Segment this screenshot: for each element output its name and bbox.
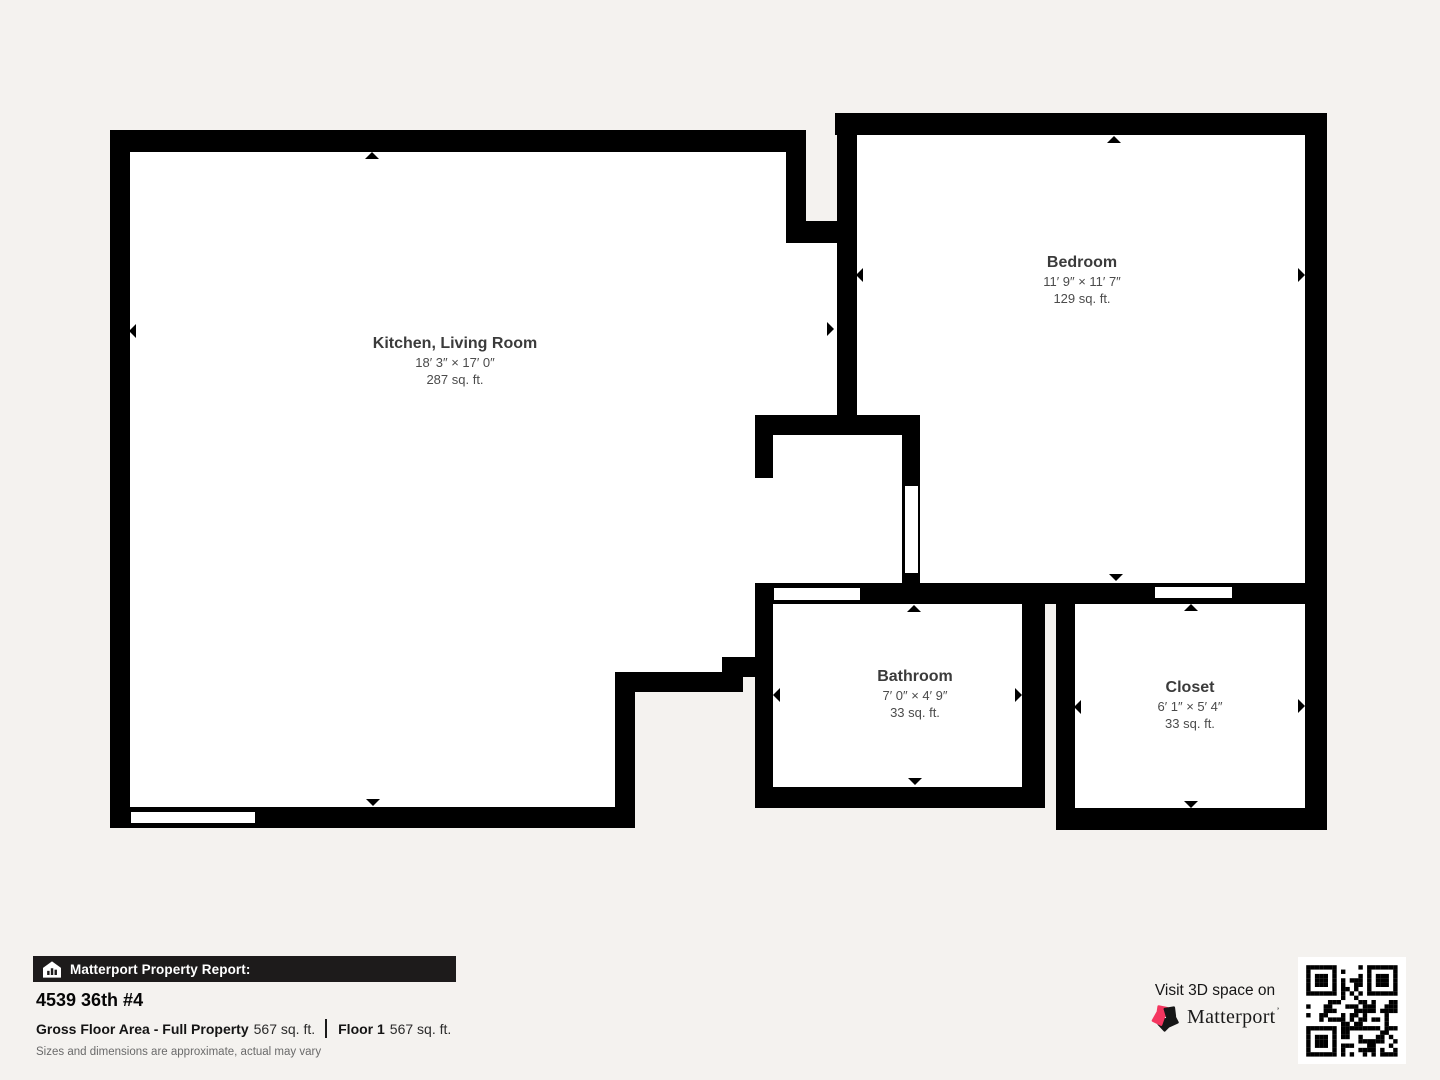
wall: [755, 583, 773, 808]
floor1-value: 567 sq. ft.: [390, 1021, 451, 1037]
gross-area-value: 567 sq. ft.: [254, 1021, 315, 1037]
wall: [615, 672, 635, 828]
wall: [1022, 583, 1045, 808]
measure-arrow-up: [365, 152, 379, 159]
matterport-pinwheel-icon: [1151, 1003, 1180, 1032]
matterport-logo: Matterport’: [1151, 1003, 1280, 1032]
wall: [1305, 602, 1327, 830]
measure-arrow-down: [366, 799, 380, 806]
qr-code: [1298, 957, 1406, 1064]
measure-arrow-down: [1109, 574, 1123, 581]
room-interior: [857, 135, 1305, 583]
disclaimer-text: Sizes and dimensions are approximate, ac…: [36, 1046, 321, 1058]
measure-arrow-right: [1298, 699, 1305, 713]
wall: [1056, 808, 1327, 830]
floor1-label: Floor 1: [338, 1021, 385, 1037]
house-chart-icon: [43, 961, 61, 978]
measure-arrow-left: [1074, 700, 1081, 714]
room-name: Closet: [1157, 679, 1222, 697]
room-label-kitchen-living-room: Kitchen, Living Room18′ 3″ × 17′ 0″287 s…: [373, 335, 537, 388]
wall: [110, 130, 130, 828]
room-interior: [786, 243, 837, 435]
measure-arrow-right: [1015, 688, 1022, 702]
measure-arrow-left: [773, 688, 780, 702]
measure-arrow-up: [1107, 136, 1121, 143]
measure-arrow-up: [1184, 604, 1198, 611]
measure-arrow-down: [908, 778, 922, 785]
wall: [1056, 602, 1075, 830]
room-dimensions: 18′ 3″ × 17′ 0″: [373, 354, 537, 371]
room-area: 287 sq. ft.: [373, 371, 537, 388]
room-name: Kitchen, Living Room: [373, 335, 537, 353]
property-address: 4539 36th #4: [36, 990, 143, 1011]
visit-3d-space-text: Visit 3D space on: [1155, 982, 1275, 1000]
wall: [806, 221, 837, 243]
measure-arrow-right: [827, 322, 834, 336]
door-opening: [1155, 587, 1232, 598]
room-name: Bedroom: [1043, 254, 1121, 272]
room-area: 129 sq. ft.: [1043, 290, 1121, 307]
banner-label: Matterport Property Report:: [70, 962, 250, 977]
room-name: Bathroom: [877, 668, 953, 686]
measure-arrow-right: [1298, 268, 1305, 282]
room-area: 33 sq. ft.: [877, 704, 953, 721]
wall: [835, 113, 1327, 135]
room-dimensions: 6′ 1″ × 5′ 4″: [1157, 698, 1222, 715]
room-area: 33 sq. ft.: [1157, 715, 1222, 732]
separator: [325, 1019, 327, 1038]
room-dimensions: 11′ 9″ × 11′ 7″: [1043, 273, 1121, 290]
room-label-bathroom: Bathroom7′ 0″ × 4′ 9″33 sq. ft.: [877, 668, 953, 721]
floor-plan: Kitchen, Living Room18′ 3″ × 17′ 0″287 s…: [0, 0, 1440, 1080]
wall: [837, 113, 857, 417]
property-report-banner: Matterport Property Report:: [33, 956, 456, 982]
wall: [110, 130, 806, 152]
window-opening: [131, 812, 255, 823]
room-label-bedroom: Bedroom11′ 9″ × 11′ 7″129 sq. ft.: [1043, 254, 1121, 307]
room-label-closet: Closet6′ 1″ × 5′ 4″33 sq. ft.: [1157, 679, 1222, 732]
measure-arrow-down: [1184, 801, 1198, 808]
door-opening: [774, 588, 860, 600]
wall: [755, 415, 920, 435]
gross-area-label: Gross Floor Area - Full Property: [36, 1021, 249, 1037]
gross-floor-area-line: Gross Floor Area - Full Property 567 sq.…: [36, 1019, 451, 1038]
wall: [755, 415, 773, 478]
matterport-wordmark: Matterport’: [1187, 1006, 1280, 1029]
measure-arrow-left: [856, 268, 863, 282]
room-dimensions: 7′ 0″ × 4′ 9″: [877, 687, 953, 704]
measure-arrow-left: [129, 324, 136, 338]
wall: [755, 787, 1045, 808]
door-opening: [905, 486, 918, 573]
measure-arrow-up: [907, 605, 921, 612]
wall: [1305, 113, 1327, 605]
matterport-floor-plan-report: Kitchen, Living Room18′ 3″ × 17′ 0″287 s…: [0, 0, 1440, 1080]
room-interior: [130, 152, 615, 807]
wall: [722, 657, 755, 677]
wall: [786, 130, 806, 243]
